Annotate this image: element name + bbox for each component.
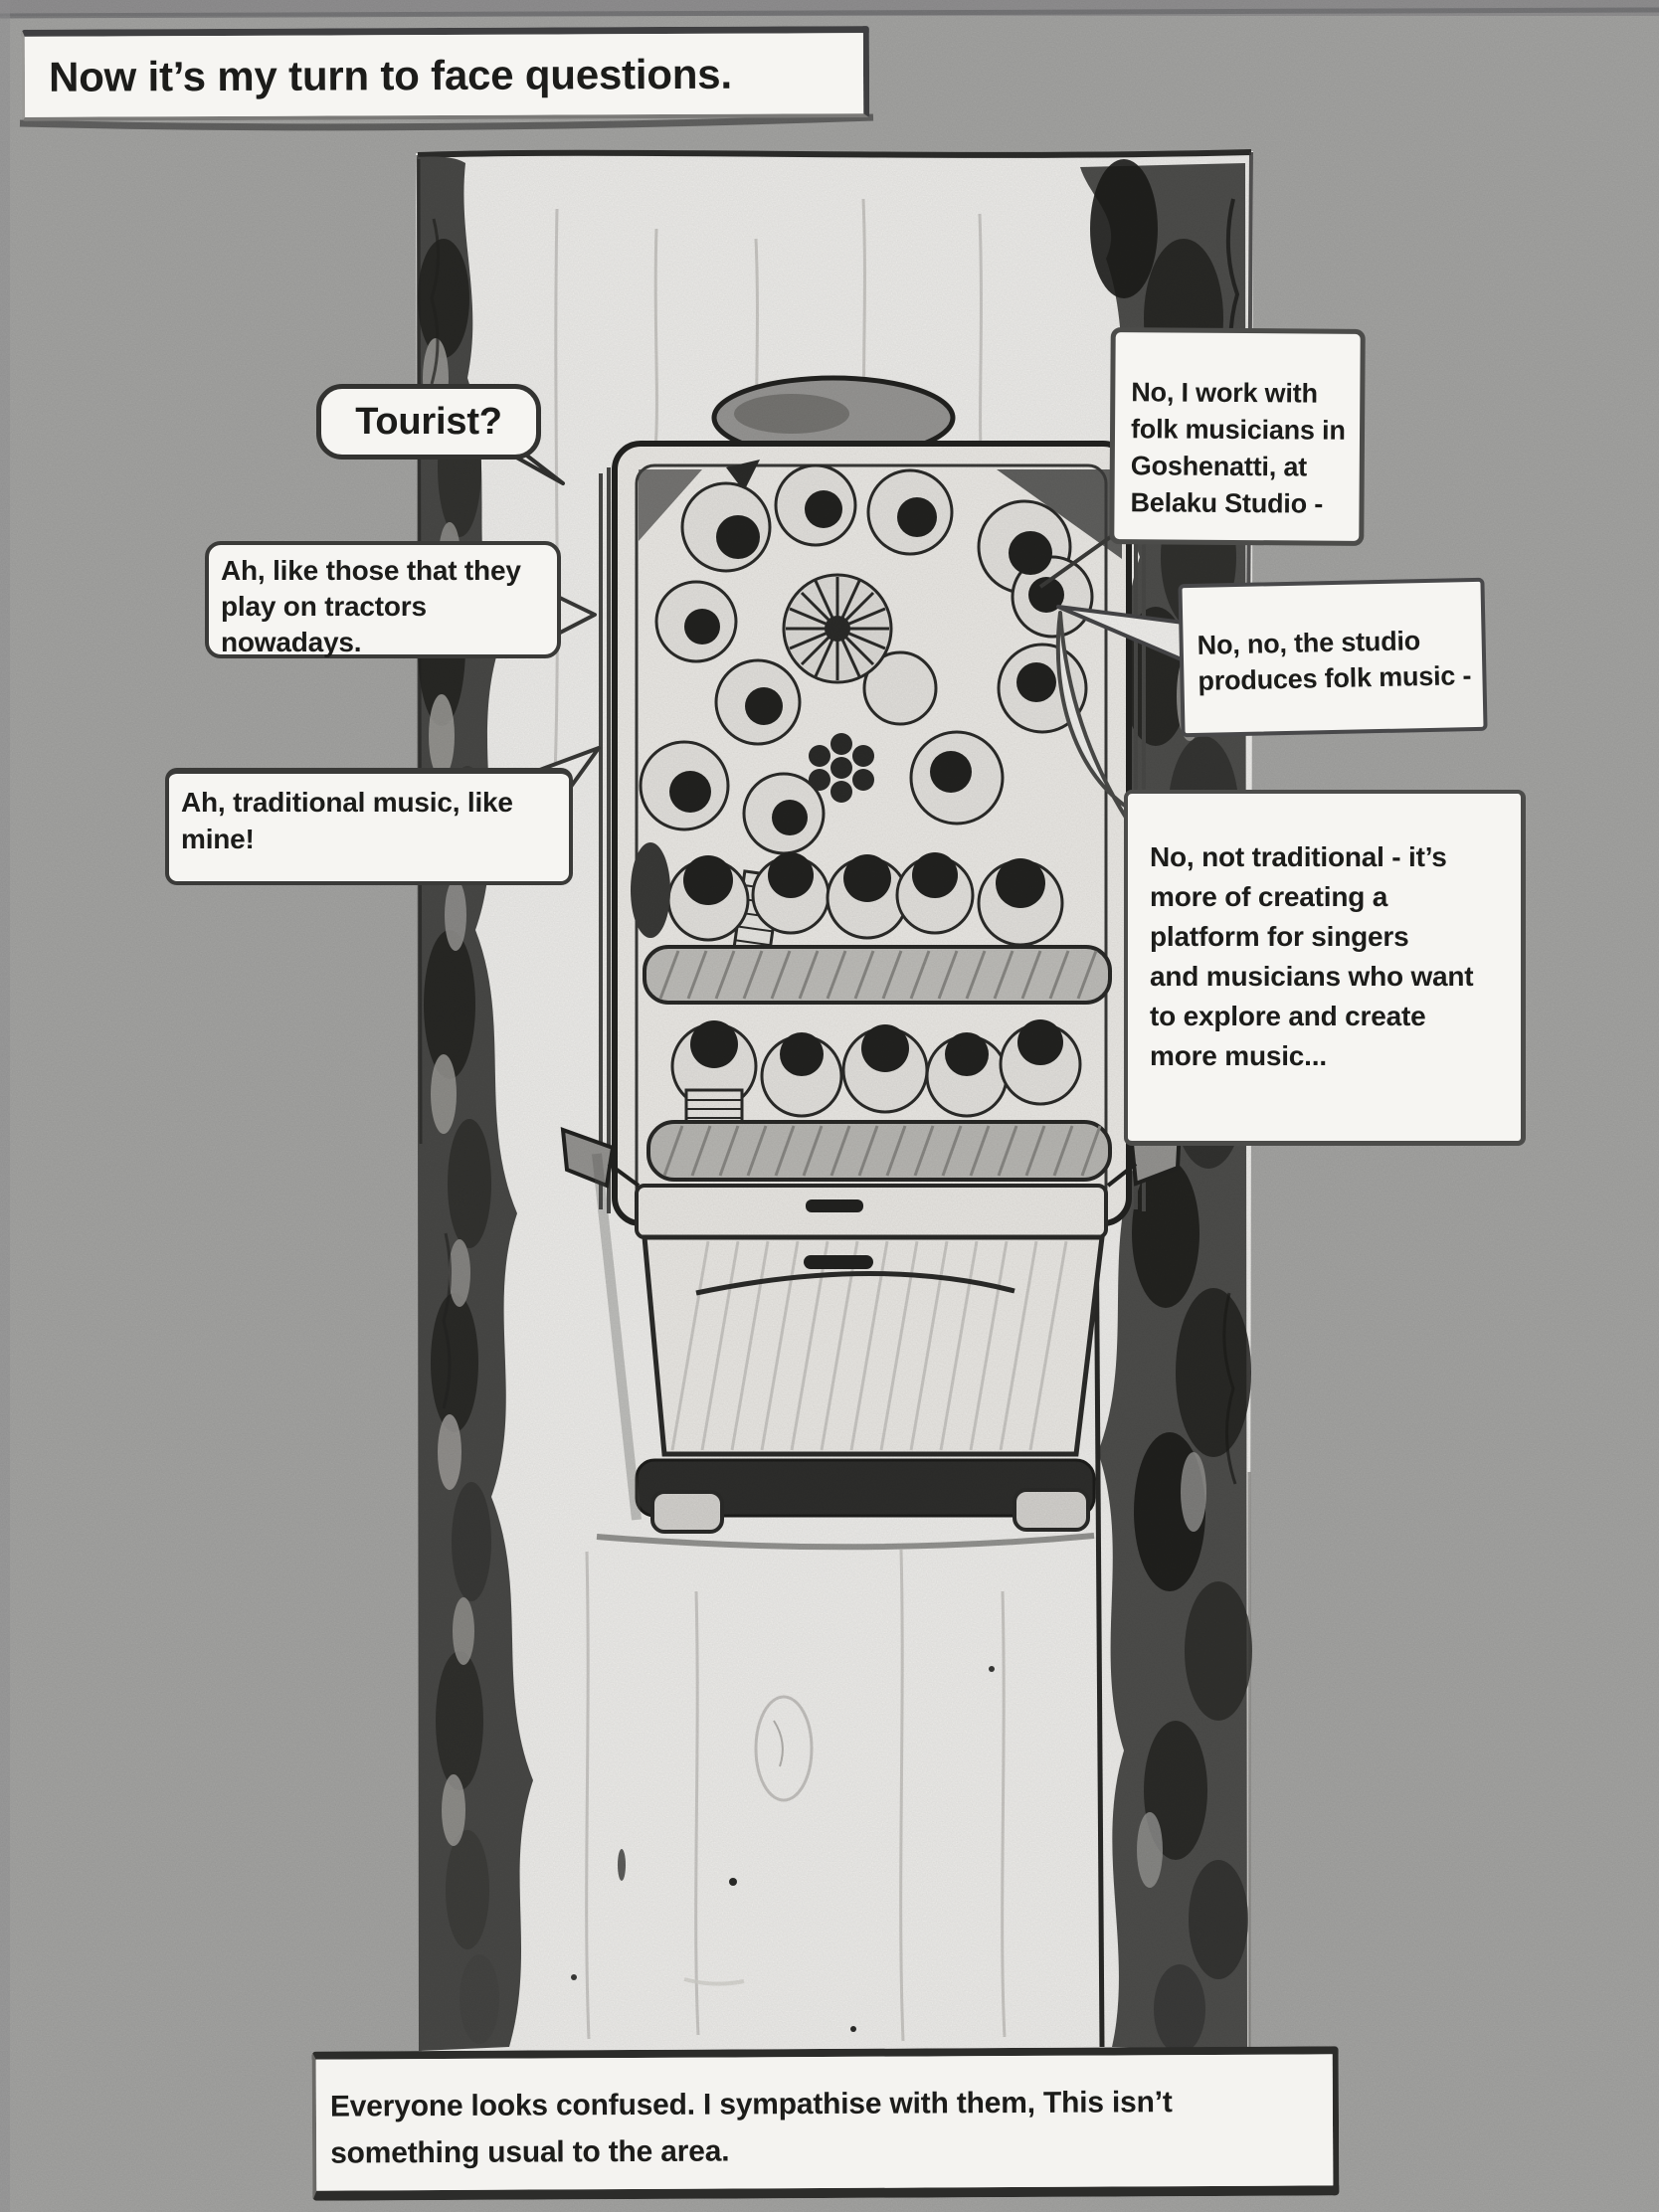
caption-line: Everyone looks confused. I sympathise wi… [330,2078,1313,2129]
speech-bubble-traditional-music: Ah, traditional music, like mine! [165,768,573,885]
bubble-line: produces folk music - [1198,657,1475,699]
caption-line: something usual to the area. [330,2124,1313,2176]
comic-page: Now it’s my turn to face questions. Tour… [0,0,1659,2212]
bubble-line: mine! [181,821,557,857]
caption-top: Now it’s my turn to face questions. [22,26,869,121]
speech-bubble-tractors: Ah, like those that they play on tractor… [205,541,561,658]
bubble-line: Belaku Studio - [1130,484,1353,523]
bubble-line: nowadays. [221,625,547,660]
bubble-line: and musicians who want [1150,957,1513,997]
bubble-line: Ah, like those that they [221,553,547,589]
bubble-line: play on tractors [221,589,547,625]
bubble-line: Ah, traditional music, like [181,784,557,821]
bubble-line: more of creating a [1150,877,1513,917]
bubble-line: to explore and create [1150,997,1513,1036]
bubble-line: platform for singers [1150,917,1513,957]
speech-bubble-folk-musicians: No, I work with folk musicians in Goshen… [1109,327,1366,546]
speech-bubble-studio-produces: No, no, the studio produces folk music - [1178,578,1487,737]
bubble-line: folk musicians in [1131,411,1354,450]
bubble-line: No, no, the studio [1197,622,1474,663]
speech-bubble-not-traditional: No, not traditional - it’s more of creat… [1124,790,1526,1146]
bubble-line: No, I work with [1131,374,1354,413]
bubble-line: No, not traditional - it’s [1150,837,1513,877]
caption-bottom: Everyone looks confused. I sympathise wi… [312,2046,1340,2200]
speech-bubble-tourist: Tourist? [316,384,541,460]
bubble-line: more music... [1150,1036,1513,1076]
bubble-line: Goshenatti, at [1131,448,1354,486]
